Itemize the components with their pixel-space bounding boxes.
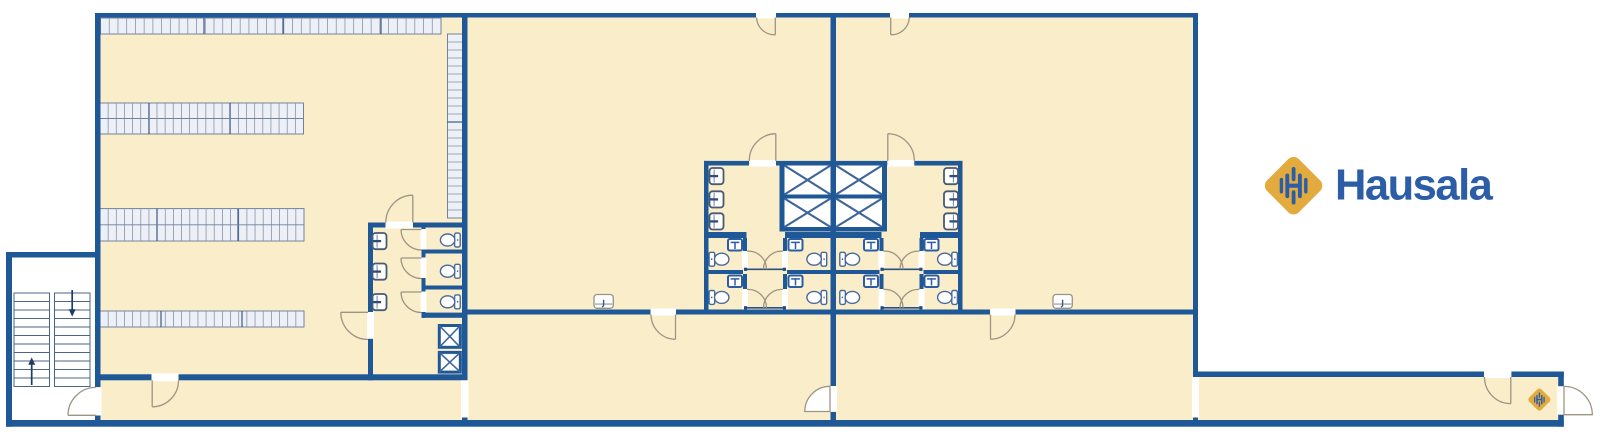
svg-text:Hausala: Hausala (1335, 162, 1494, 210)
